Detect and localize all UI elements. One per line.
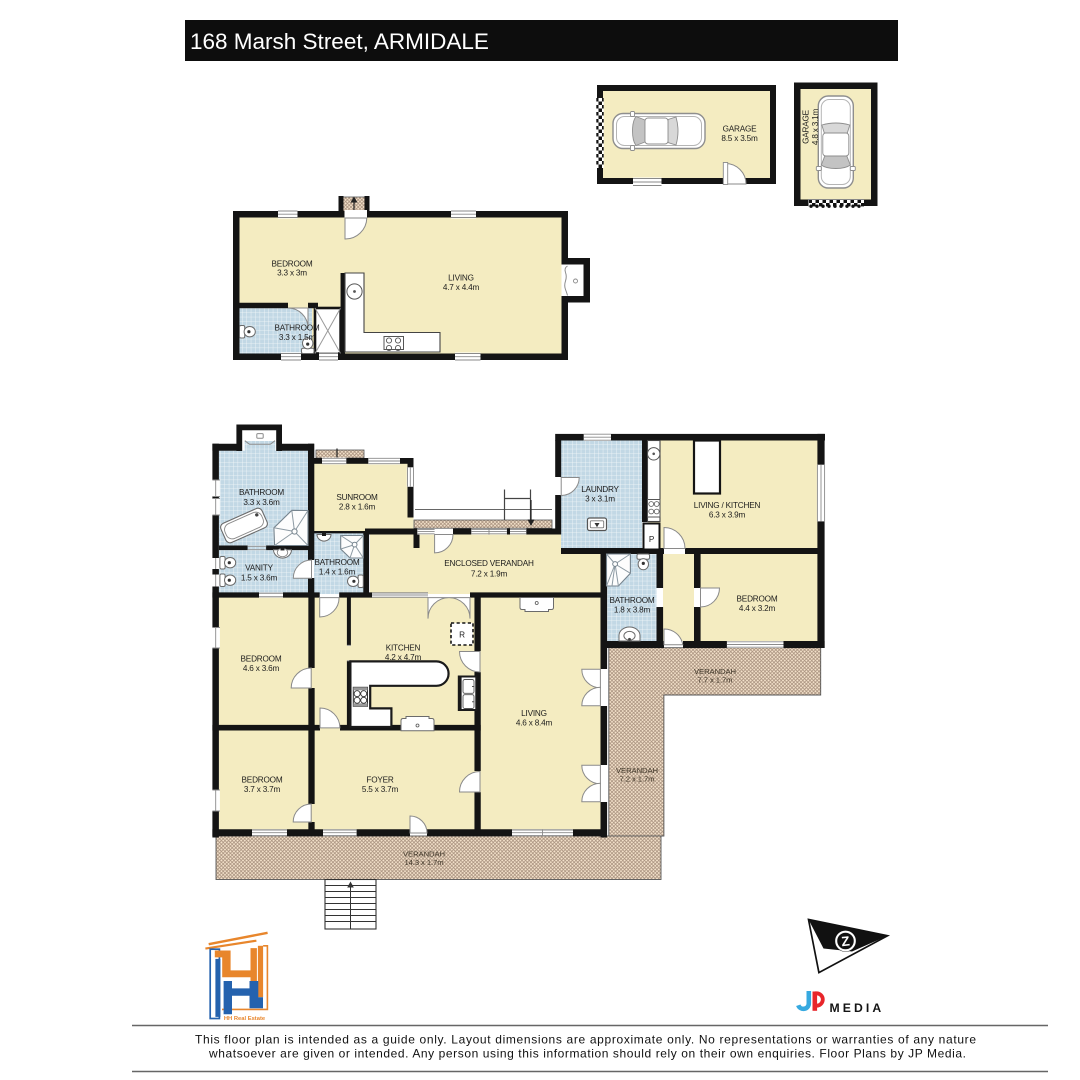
svg-text:BATHROOM: BATHROOM: [274, 324, 319, 333]
svg-text:KITCHEN: KITCHEN: [386, 644, 421, 653]
svg-text:P: P: [649, 535, 655, 544]
svg-text:2.8 x 1.6m: 2.8 x 1.6m: [339, 503, 376, 512]
svg-text:3.7 x 3.7m: 3.7 x 3.7m: [244, 785, 281, 794]
svg-text:7.2 x 1.9m: 7.2 x 1.9m: [471, 570, 508, 579]
svg-text:R: R: [459, 631, 465, 640]
svg-text:7.7 x 1.7m: 7.7 x 1.7m: [698, 676, 733, 685]
svg-text:ENCLOSED VERANDAH: ENCLOSED VERANDAH: [444, 559, 534, 568]
svg-text:8.5 x 3.5m: 8.5 x 3.5m: [721, 134, 758, 143]
svg-text:3 x 3.1m: 3 x 3.1m: [585, 495, 615, 504]
svg-text:FOYER: FOYER: [366, 776, 393, 785]
svg-text:BATHROOM: BATHROOM: [239, 488, 284, 497]
svg-text:GARAGE: GARAGE: [802, 109, 811, 144]
svg-text:14.3 x 1.7m: 14.3 x 1.7m: [404, 858, 443, 867]
svg-text:5.5 x 3.7m: 5.5 x 3.7m: [362, 785, 399, 794]
svg-text:BATHROOM: BATHROOM: [314, 558, 359, 567]
svg-text:3.3 x 1.5m: 3.3 x 1.5m: [279, 333, 316, 342]
svg-text:SUNROOM: SUNROOM: [336, 493, 378, 502]
svg-text:3.3 x 3.6m: 3.3 x 3.6m: [243, 498, 280, 507]
svg-text:4.2 x 4.7m: 4.2 x 4.7m: [385, 653, 422, 662]
svg-text:4.7 x 4.4m: 4.7 x 4.4m: [443, 283, 480, 292]
svg-text:Z: Z: [841, 933, 851, 949]
svg-text:4.6 x 8.4m: 4.6 x 8.4m: [516, 719, 553, 728]
svg-text:1.5 x 3.6m: 1.5 x 3.6m: [241, 574, 278, 583]
svg-text:4.4 x 3.2m: 4.4 x 3.2m: [739, 604, 776, 613]
svg-text:7.2 x 1.7m: 7.2 x 1.7m: [620, 775, 655, 784]
svg-text:BEDROOM: BEDROOM: [737, 595, 778, 604]
svg-text:6.3 x 3.9m: 6.3 x 3.9m: [709, 511, 746, 520]
svg-text:This floor plan is intended as: This floor plan is intended as a guide o…: [195, 1033, 976, 1047]
svg-text:GARAGE: GARAGE: [723, 125, 758, 134]
svg-text:LIVING: LIVING: [521, 709, 547, 718]
svg-text:168 Marsh Street, ARMIDALE: 168 Marsh Street, ARMIDALE: [190, 29, 489, 54]
svg-text:4.6 x 3.6m: 4.6 x 3.6m: [243, 664, 280, 673]
svg-text:LIVING / KITCHEN: LIVING / KITCHEN: [694, 501, 761, 510]
svg-text:BEDROOM: BEDROOM: [272, 260, 313, 269]
svg-text:HH Real Estate: HH Real Estate: [224, 1016, 266, 1022]
svg-text:3.3 x 3m: 3.3 x 3m: [277, 269, 307, 278]
svg-text:BATHROOM: BATHROOM: [609, 596, 654, 605]
svg-text:BEDROOM: BEDROOM: [241, 655, 282, 664]
svg-text:MEDIA: MEDIA: [830, 1001, 885, 1015]
svg-text:whatsoever are given or intend: whatsoever are given or intended. Any pe…: [208, 1047, 966, 1061]
svg-text:LAUNDRY: LAUNDRY: [581, 485, 619, 494]
svg-text:BEDROOM: BEDROOM: [242, 776, 283, 785]
svg-text:1.8 x 3.8m: 1.8 x 3.8m: [614, 606, 651, 615]
svg-text:LIVING: LIVING: [448, 274, 474, 283]
svg-text:VANITY: VANITY: [245, 564, 274, 573]
svg-text:1.4 x 1.6m: 1.4 x 1.6m: [319, 568, 356, 577]
svg-text:4.8 x 3.1m: 4.8 x 3.1m: [811, 109, 820, 146]
